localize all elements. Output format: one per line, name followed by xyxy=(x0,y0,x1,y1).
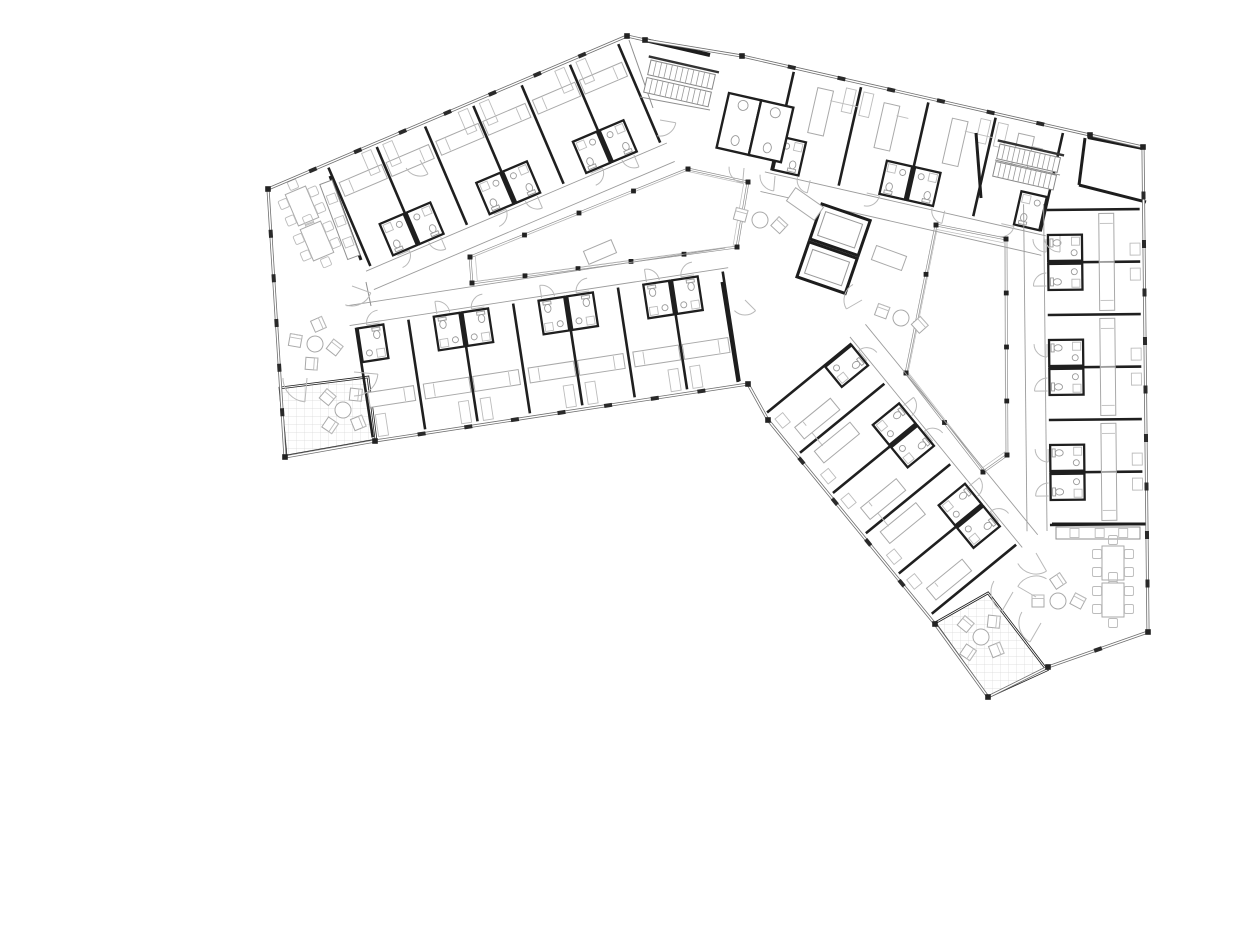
lounge-chair xyxy=(987,615,1000,628)
lounge-chair xyxy=(305,357,318,370)
floor-plan-drawing xyxy=(0,0,1250,944)
kitchenette-southeast xyxy=(1056,527,1140,539)
lounge-chair xyxy=(1032,595,1044,607)
floor-plan-page xyxy=(0,0,1250,944)
lounge-chair xyxy=(733,207,748,222)
lounge-chair xyxy=(288,334,302,348)
